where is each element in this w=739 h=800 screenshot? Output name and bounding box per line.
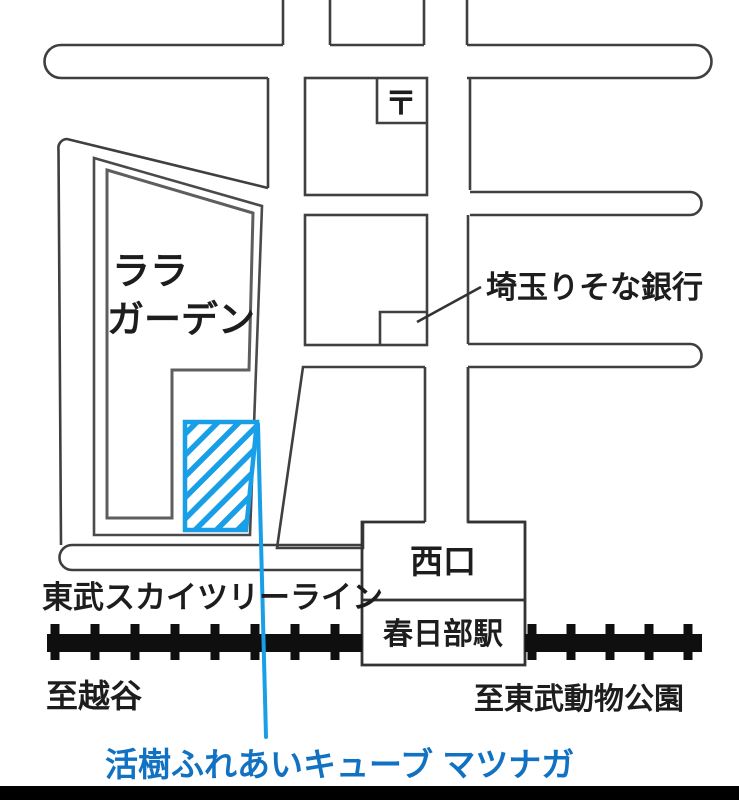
highlight-hatched-area	[185, 422, 257, 530]
station-label: 春日部駅	[383, 617, 503, 651]
highlight-location-label: 活樹ふれあいキューブ マツナガ	[105, 746, 574, 783]
postal-mark-icon: 〒	[385, 85, 417, 121]
access-map: ララ ガーデン 〒 埼玉りそな銀行 西口 春日部駅 東武スカイツリーライン 至越…	[0, 0, 739, 800]
direction-right-label: 至東武動物公園	[474, 683, 684, 716]
west-exit-label: 西口	[410, 543, 476, 580]
railway-line-label: 東武スカイツリーライン	[42, 580, 383, 615]
map-canvas: ララ ガーデン 〒 埼玉りそな銀行 西口 春日部駅 東武スカイツリーライン 至越…	[0, 0, 739, 800]
road-station-vertical	[425, 367, 468, 522]
railway	[47, 624, 702, 660]
road-top-horizontal	[45, 45, 712, 78]
lala-garden-label-line2: ガーデン	[107, 298, 255, 340]
road-right-lower	[468, 344, 702, 367]
bottom-bar	[0, 786, 739, 800]
road-top-vertical-left	[283, 0, 330, 45]
city-blocks	[277, 78, 525, 548]
bank-block	[305, 215, 427, 345]
road-right-upper	[470, 192, 702, 215]
bank-label: 埼玉りそな銀行	[486, 270, 703, 305]
lala-garden-label-line1: ララ	[112, 251, 188, 293]
direction-left-label: 至越谷	[46, 678, 142, 714]
road-top-vertical-right	[424, 0, 467, 45]
